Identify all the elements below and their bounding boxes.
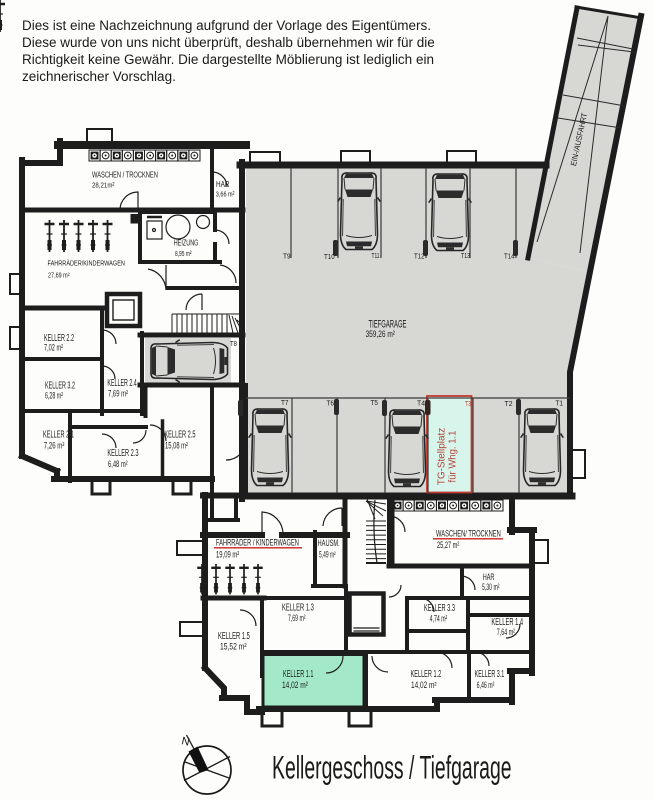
- svg-text:KELLER 1.3: KELLER 1.3: [282, 602, 314, 613]
- svg-text:6,46 m²: 6,46 m²: [477, 679, 495, 690]
- svg-text:7,69 m²: 7,69 m²: [108, 388, 128, 399]
- svg-text:3,66 m²: 3,66 m²: [216, 191, 235, 199]
- svg-text:KELLER 2.5: KELLER 2.5: [164, 429, 195, 440]
- svg-text:FAHRRÄDER / KINDERWAGEN: FAHRRÄDER / KINDERWAGEN: [216, 537, 299, 548]
- svg-text:27,69 m²: 27,69 m²: [48, 272, 70, 280]
- svg-text:TG-Stellplatz: TG-Stellplatz: [436, 428, 447, 485]
- svg-text:7,26 m²: 7,26 m²: [44, 440, 65, 450]
- svg-text:T7: T7: [281, 400, 289, 408]
- svg-text:KELLER 1.1: KELLER 1.1: [283, 668, 314, 679]
- svg-text:T10: T10: [324, 254, 335, 262]
- svg-text:T1: T1: [556, 400, 564, 408]
- svg-text:6,48 m²: 6,48 m²: [108, 459, 128, 470]
- svg-text:T13: T13: [461, 252, 470, 260]
- svg-text:T11: T11: [372, 252, 380, 260]
- svg-text:T12: T12: [414, 253, 425, 261]
- svg-text:T6: T6: [327, 400, 335, 408]
- svg-text:KELLER 2.1: KELLER 2.1: [43, 429, 74, 440]
- svg-text:WASCHEN / TROCKNEN: WASCHEN / TROCKNEN: [92, 172, 158, 180]
- svg-text:7,64 m²: 7,64 m²: [497, 627, 516, 638]
- svg-text:Kellergeschoss / Tiefgarage: Kellergeschoss / Tiefgarage: [272, 749, 512, 785]
- svg-text:HAR: HAR: [216, 179, 230, 189]
- svg-text:Dies ist eine Nachzeichnung au: Dies ist eine Nachzeichnung aufgrund der…: [22, 18, 431, 33]
- svg-text:für Whg. 1.1: für Whg. 1.1: [447, 430, 459, 482]
- svg-text:KELLER 2.3: KELLER 2.3: [107, 447, 138, 458]
- svg-text:T14: T14: [504, 253, 515, 261]
- svg-text:15,52 m²: 15,52 m²: [220, 642, 247, 652]
- svg-text:HEIZUNG: HEIZUNG: [174, 240, 199, 248]
- svg-text:4,74 m²: 4,74 m²: [430, 613, 448, 624]
- svg-text:359,26 m²: 359,26 m²: [366, 329, 396, 339]
- svg-text:KELLER 3.3: KELLER 3.3: [424, 602, 455, 613]
- svg-text:Richtigkeit keine Gewähr. Die: Richtigkeit keine Gewähr. Die dargestell…: [22, 52, 434, 67]
- svg-text:zeichnerischer Vorschlag.: zeichnerischer Vorschlag.: [22, 69, 176, 84]
- svg-text:19,09 m²: 19,09 m²: [216, 549, 240, 560]
- svg-text:15,08 m²: 15,08 m²: [165, 440, 188, 451]
- svg-text:WASCHEN/ TROCKNEN: WASCHEN/ TROCKNEN: [436, 528, 501, 539]
- svg-text:KELLER 1.5: KELLER 1.5: [218, 630, 250, 641]
- svg-text:T4: T4: [417, 398, 425, 407]
- svg-text:5,30 m²: 5,30 m²: [482, 581, 500, 592]
- svg-text:T8: T8: [230, 340, 237, 348]
- svg-text:FAHRRÄDER/KINDERWAGEN: FAHRRÄDER/KINDERWAGEN: [48, 259, 126, 268]
- svg-text:28,21m²: 28,21m²: [92, 182, 115, 190]
- svg-text:T2: T2: [505, 399, 513, 408]
- svg-text:7,02 m²: 7,02 m²: [44, 342, 63, 353]
- svg-text:6,28 m²: 6,28 m²: [45, 390, 63, 401]
- svg-text:T5: T5: [371, 400, 379, 408]
- svg-text:Diese wurde von uns nicht über: Diese wurde von uns nicht überprüft, des…: [22, 35, 435, 50]
- svg-text:KELLER 2.4: KELLER 2.4: [107, 377, 137, 388]
- svg-text:14,02 m²: 14,02 m²: [282, 680, 308, 690]
- svg-text:HAUSM.: HAUSM.: [318, 538, 340, 549]
- svg-text:8,95 m²: 8,95 m²: [175, 250, 192, 258]
- svg-text:T9: T9: [283, 252, 291, 261]
- svg-text:T3: T3: [465, 400, 471, 408]
- svg-text:7,69 m²: 7,69 m²: [288, 612, 306, 623]
- svg-text:25,27 m²: 25,27 m²: [437, 539, 460, 550]
- svg-text:KELLER 3.2: KELLER 3.2: [45, 380, 75, 391]
- svg-text:KELLER 1.2: KELLER 1.2: [411, 668, 442, 679]
- svg-text:5,49 m²: 5,49 m²: [319, 550, 336, 560]
- svg-text:14,02 m²: 14,02 m²: [411, 680, 437, 690]
- svg-text:KELLER 3.1: KELLER 3.1: [475, 668, 505, 679]
